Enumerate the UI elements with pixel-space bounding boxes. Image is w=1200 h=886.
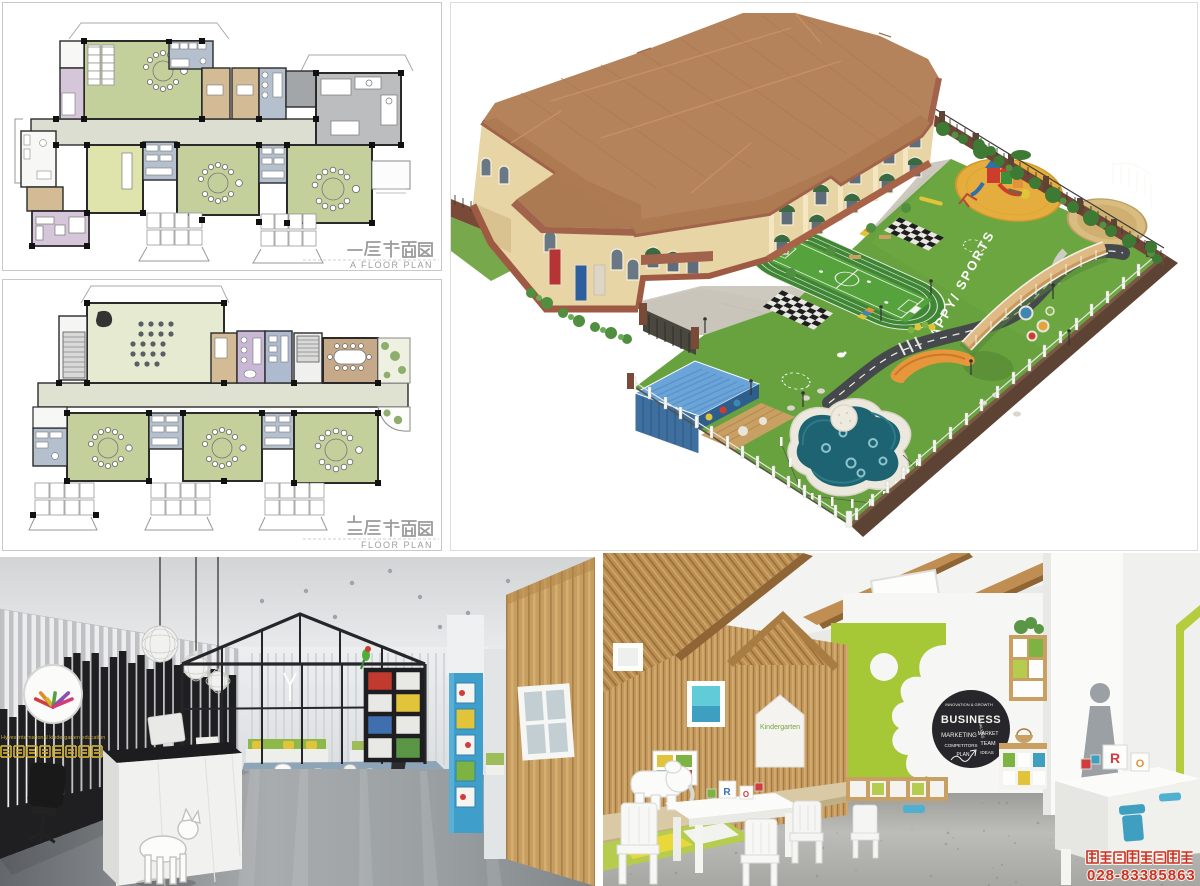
svg-text:028-83385863: 028-83385863: [1087, 867, 1196, 884]
svg-text:MARKETING: MARKETING: [941, 733, 977, 739]
svg-text:O: O: [1136, 758, 1145, 770]
svg-text:Kindergarten: Kindergarten: [760, 724, 800, 731]
svg-text:COMPETITORS: COMPETITORS: [945, 743, 978, 748]
svg-text:A FLOOR PLAN: A FLOOR PLAN: [350, 260, 433, 270]
svg-text:FLOOR PLAN: FLOOR PLAN: [361, 540, 433, 550]
svg-text:R: R: [723, 787, 731, 798]
svg-text:TEAM: TEAM: [980, 741, 996, 747]
svg-text:INNOVATION & GROWTH: INNOVATION & GROWTH: [945, 702, 993, 707]
svg-text:Hyves international kindergart: Hyves international kindergarten educati…: [1, 735, 105, 741]
svg-text:R: R: [1110, 750, 1120, 766]
svg-text:BUSINESS: BUSINESS: [941, 714, 1001, 726]
svg-text:O: O: [743, 790, 749, 799]
svg-text:IDEAS: IDEAS: [980, 750, 994, 755]
